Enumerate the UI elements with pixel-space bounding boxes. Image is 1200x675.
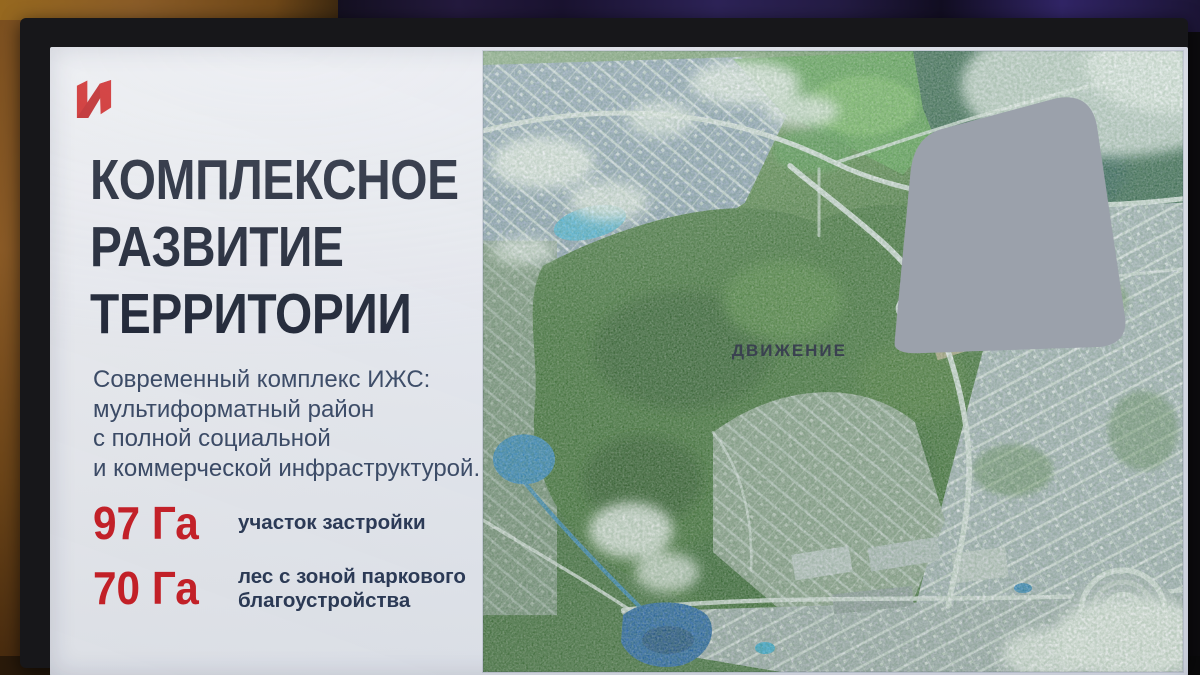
presentation-slide: КОМПЛЕКСНОЕ РАЗВИТИЕ ТЕРРИТОРИИ Современ… [50,47,1188,675]
subtitle-line-4: и коммерческой инфраструктурой. [93,454,480,484]
title-line-2: РАЗВИТИЕ [90,214,459,281]
title-line-3: ТЕРРИТОРИИ [90,281,459,348]
stat-row-plot: 97 Га участок застройки [93,497,473,549]
tv-bezel: КОМПЛЕКСНОЕ РАЗВИТИЕ ТЕРРИТОРИИ Современ… [20,18,1188,668]
aerial-map-image: ДВИЖЕНИЕ [483,51,1183,672]
house-icon [857,64,1157,364]
stat-row-forest: 70 Га лес с зоной паркового благоустройс… [93,562,473,614]
title-line-1: КОМПЛЕКСНОЕ [90,147,459,214]
watermark-dvizhenie: ДВИЖЕНИЕ [732,64,1157,364]
area-stats: 97 Га участок застройки 70 Га лес с зоно… [93,497,473,614]
watermark-label: ДВИЖЕНИЕ [732,341,847,361]
red-flag-i-logo-icon [75,79,113,119]
subtitle: Современный комплекс ИЖС: мультиформатны… [93,365,480,483]
page-title: КОМПЛЕКСНОЕ РАЗВИТИЕ ТЕРРИТОРИИ [90,147,459,348]
subtitle-line-1: Современный комплекс ИЖС: [93,365,480,395]
photo-of-tv-screen: КОМПЛЕКСНОЕ РАЗВИТИЕ ТЕРРИТОРИИ Современ… [0,0,1200,675]
subtitle-line-3: с полной социальной [93,424,480,454]
stat-value-70ha: 70 Га [93,562,226,614]
stat-label-forest: лес с зоной паркового благоустройства [238,562,473,613]
stat-label-plot: участок застройки [238,497,473,535]
subtitle-line-2: мультиформатный район [93,395,480,425]
stat-value-97ha: 97 Га [93,497,226,549]
